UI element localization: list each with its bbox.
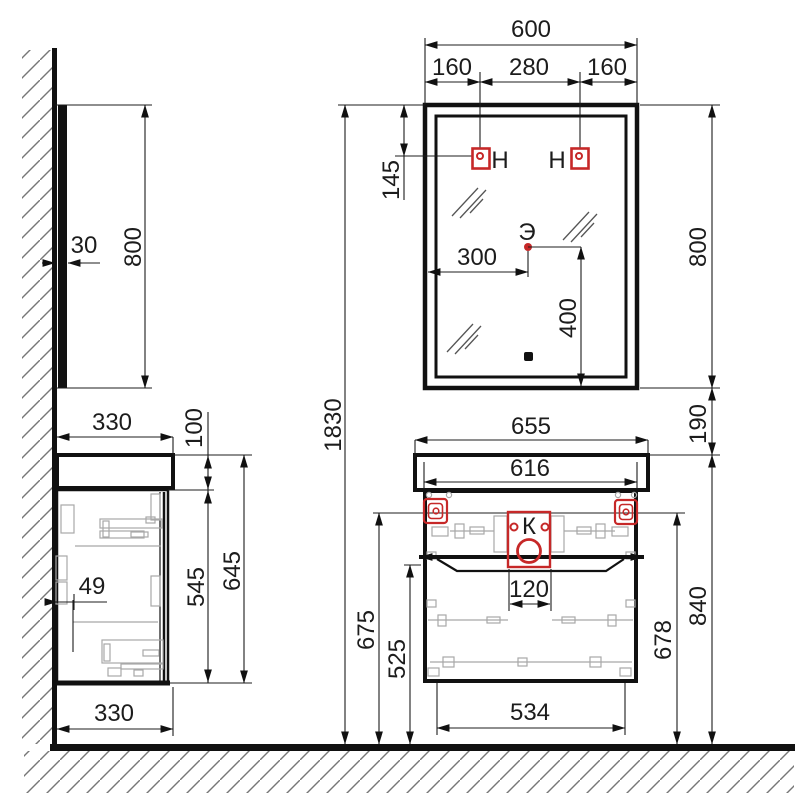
dim-counter-depth: 330 — [92, 409, 132, 436]
dim-counter-rise: 100 — [181, 408, 208, 448]
dim-counter-width: 655 — [511, 413, 551, 440]
mirror-bracket-right-icon — [572, 149, 589, 169]
floor-hatching — [24, 751, 794, 793]
dim-bracket-height-right: 678 — [650, 620, 677, 660]
dim-socket-y: 400 — [555, 298, 582, 338]
countertop-side — [57, 455, 173, 488]
dim-cabinet-width: 616 — [510, 455, 550, 482]
dim-bracket-height-left: 675 — [353, 610, 380, 650]
bracket-left-label: H — [491, 147, 508, 174]
cabinet-bracket-right-icon — [615, 500, 637, 524]
wall — [22, 48, 57, 746]
mirror-bracket-left-icon — [473, 149, 490, 169]
dim-drain-width: 120 — [509, 576, 549, 603]
mirror-front-view: 600 160 280 160 145 H H Э 300 — [378, 16, 720, 455]
vanity-installation-diagram: 30 800 600 160 280 16 — [0, 0, 800, 800]
dim-bracket-drop: 145 — [378, 160, 405, 200]
dim-mirror-left: 160 — [432, 54, 472, 81]
dim-counter-depth-bottom: 330 — [94, 700, 134, 727]
mirror-side-view: 30 800 — [42, 105, 152, 388]
dim-cabinet-bottom-width: 534 — [510, 699, 550, 726]
dim-counter-height-floor: 840 — [685, 586, 712, 626]
basin-bowl — [437, 559, 624, 571]
dim-socket-x: 300 — [457, 244, 497, 271]
dim-gap-mirror-cabinet: 190 — [685, 404, 712, 444]
drain-label: К — [522, 513, 536, 540]
vanity-front-view: 655 616 — [353, 413, 720, 744]
vanity-side-view: 330 49 100 545 645 330 — [45, 408, 252, 736]
mirror-side-profile — [58, 105, 67, 388]
dim-wall-gap: 49 — [79, 573, 106, 600]
cabinet-bracket-left-icon — [424, 499, 447, 523]
touch-switch-icon — [524, 352, 533, 361]
dim-mirror-thickness: 30 — [71, 232, 98, 259]
floor-line — [50, 744, 795, 751]
dim-mirror-center: 280 — [509, 54, 549, 81]
dim-mirror-height-side: 800 — [120, 227, 147, 267]
dim-mirror-height-right: 800 — [685, 227, 712, 267]
dim-mirror-width: 600 — [511, 16, 551, 43]
socket-label: Э — [518, 219, 535, 246]
dim-total-height: 1830 — [320, 398, 347, 451]
dim-basin-height: 525 — [384, 639, 411, 679]
dim-cabinet-side-height: 545 — [183, 567, 210, 607]
floor — [24, 744, 795, 793]
power-socket-icon: Э — [518, 219, 535, 251]
wall-hatching — [22, 50, 53, 744]
dim-mirror-right: 160 — [587, 54, 627, 81]
technical-drawing: 30 800 600 160 280 16 — [0, 0, 800, 800]
drawer-hardware-side — [56, 494, 163, 676]
bracket-right-label: H — [548, 147, 565, 174]
dim-cabinet-side-total: 645 — [219, 551, 246, 591]
